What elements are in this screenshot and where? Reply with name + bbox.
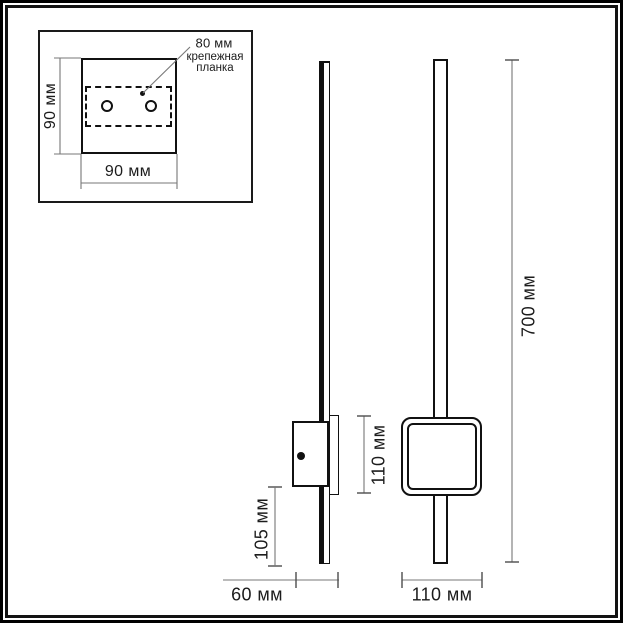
width-dim-label: 110 мм (412, 585, 473, 606)
screw-hole-left (101, 100, 113, 112)
callout-line2: планка (187, 63, 244, 74)
callout-anchor-dot (140, 91, 145, 96)
total-height-dim-label: 700 мм (519, 275, 540, 337)
square-height-dim-label: 110 мм (369, 425, 390, 486)
technical-drawing-canvas: 90 мм 90 мм 80 мм крепежная планка 105 м… (0, 0, 623, 623)
mounting-bracket-dashed-outline (85, 86, 172, 127)
screw-hole-right (145, 100, 157, 112)
inset-width-dim-label: 90 мм (105, 163, 151, 181)
side-view-lamp-bar (319, 61, 330, 564)
depth-dim-label: 60 мм (231, 585, 283, 606)
mounting-plate-callout: крепежная планка (187, 52, 244, 73)
screw-dot-icon (297, 452, 305, 460)
front-view-square-inner (407, 423, 477, 490)
bottom-offset-dim-label: 105 мм (252, 498, 273, 560)
inset-height-dim-label: 90 мм (42, 83, 60, 129)
hole-spacing-dim-label: 80 мм (196, 36, 233, 51)
callout-line1: крепежная (187, 52, 244, 63)
